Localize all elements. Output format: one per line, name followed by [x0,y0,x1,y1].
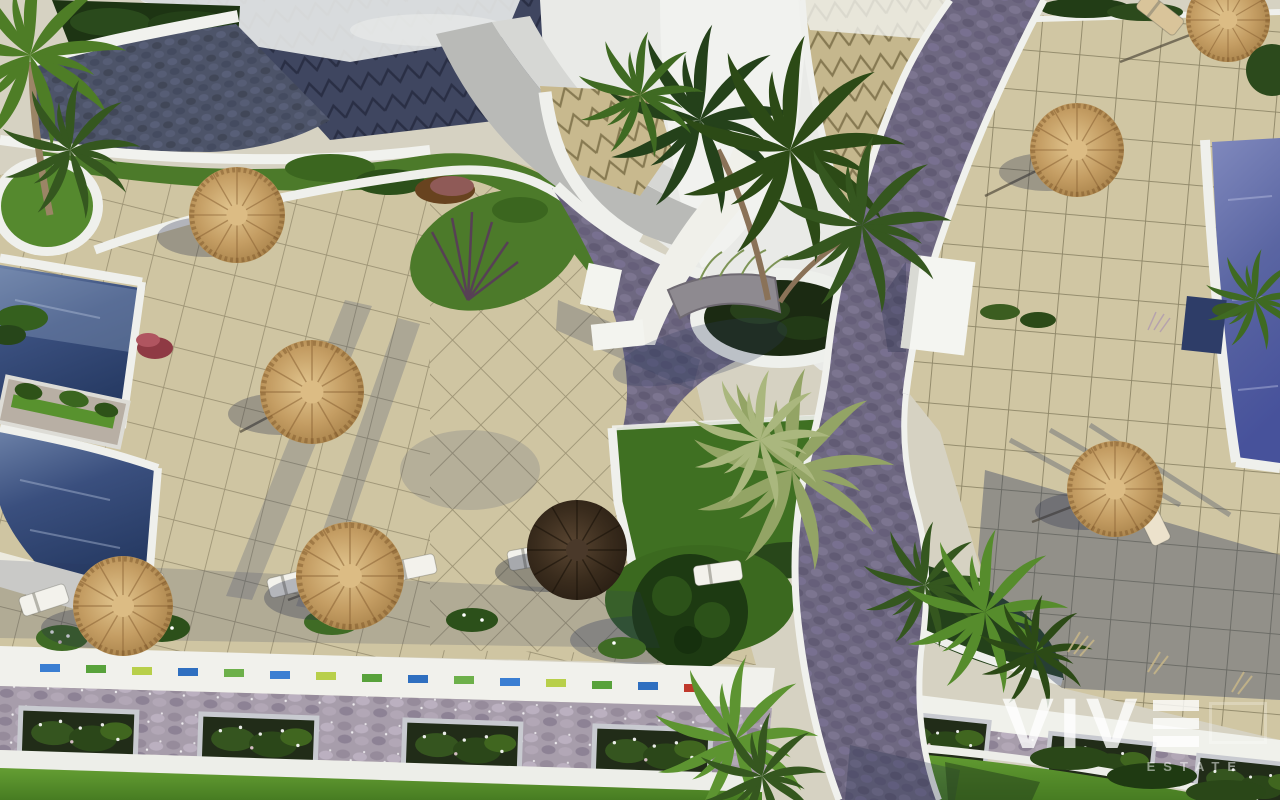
dark-parasol [527,500,627,600]
bottom-promenade-left [0,646,775,800]
thatch-parasol [296,522,404,630]
render-canvas [0,0,1280,800]
flower-bush [446,608,498,632]
resort-aerial-render: VIV ESTATE [0,0,1280,800]
flower-bush [598,637,646,659]
thatch-parasol [73,556,173,656]
thatch-parasol [1030,103,1124,197]
thatch-parasol [189,167,285,263]
white-bench [591,319,645,350]
thatch-parasol [1067,441,1163,537]
thatch-parasol [260,340,364,444]
